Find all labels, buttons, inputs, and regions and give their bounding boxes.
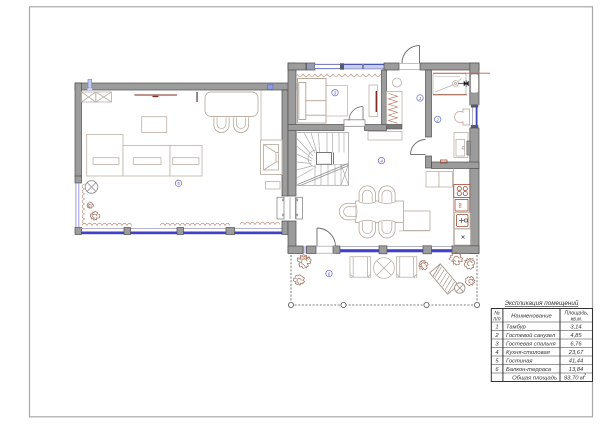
- svg-text:6: 6: [328, 271, 331, 276]
- svg-text:Тамбур: Тамбур: [506, 324, 527, 330]
- svg-text:Экспликация помещений: Экспликация помещений: [505, 299, 579, 307]
- svg-text:Общая площадь: Общая площадь: [512, 375, 557, 381]
- svg-text:1: 1: [495, 324, 498, 330]
- svg-text:4: 4: [380, 159, 383, 164]
- svg-text:41,44: 41,44: [569, 358, 584, 364]
- svg-text:1: 1: [419, 96, 422, 101]
- svg-text:Гостиная: Гостиная: [506, 358, 533, 364]
- svg-text:2: 2: [435, 117, 439, 122]
- svg-text:кв.м.: кв.м.: [571, 316, 583, 322]
- svg-text:93,70 м: 93,70 м: [564, 375, 584, 381]
- svg-text:5: 5: [177, 181, 180, 186]
- svg-text:ПМ: ПМ: [459, 203, 463, 208]
- svg-text:6,76: 6,76: [570, 341, 582, 347]
- svg-text:3: 3: [334, 91, 337, 96]
- svg-text:3,14: 3,14: [570, 324, 581, 330]
- svg-text:23,67: 23,67: [568, 350, 584, 356]
- svg-text:Гостевой санузел: Гостевой санузел: [506, 332, 556, 339]
- svg-text:п/п: п/п: [493, 316, 500, 322]
- svg-text:4: 4: [495, 350, 498, 356]
- svg-text:Гостевая спальня: Гостевая спальня: [506, 341, 556, 347]
- svg-text:2: 2: [583, 373, 587, 378]
- svg-text:4,85: 4,85: [570, 333, 582, 339]
- svg-text:Наименование: Наименование: [511, 313, 552, 319]
- svg-text:Балкон-терраса: Балкон-терраса: [506, 367, 552, 373]
- svg-text:13,84: 13,84: [569, 367, 584, 373]
- svg-text:Кухня-столовая: Кухня-столовая: [506, 350, 550, 356]
